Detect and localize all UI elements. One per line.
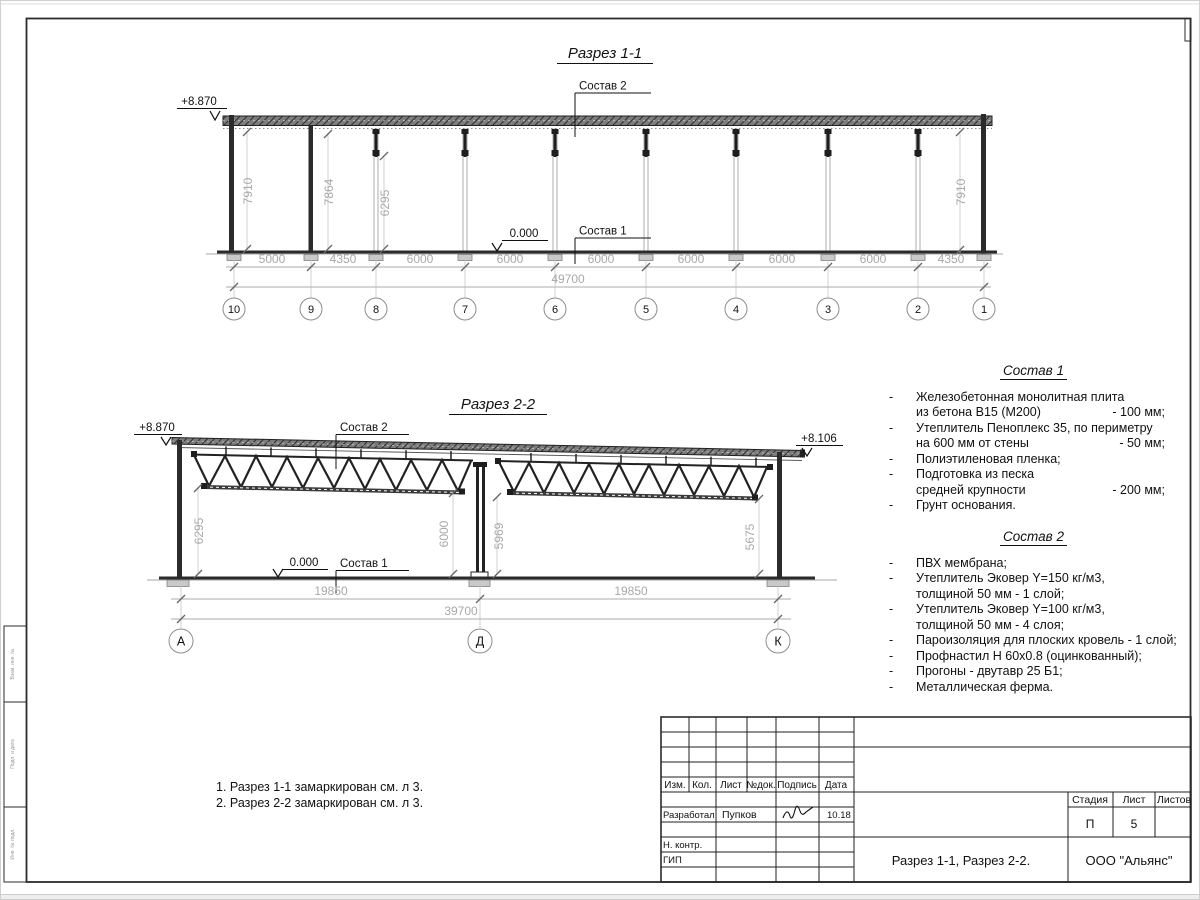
tb-sheet-label: Лист <box>1123 794 1146 806</box>
svg-text:+8.870: +8.870 <box>181 96 217 108</box>
sostav2-block: Состав 2 - ПВХ мембрана; - Утеплитель Эк… <box>876 529 1191 695</box>
svg-text:Состав 1: Состав 1 <box>340 558 388 570</box>
section1-title: Разрез 1-1 <box>568 45 642 62</box>
svg-text:4350: 4350 <box>938 252 965 266</box>
list-item: - Утеплитель Пеноплекс 35, по периметру … <box>876 421 1191 452</box>
section2-dim-chain: 19850 19850 39700 <box>171 584 791 628</box>
svg-text:5: 5 <box>643 304 649 316</box>
list-item: - ПВХ мембрана; <box>876 556 1191 572</box>
svg-text:Состав 2: Состав 2 <box>340 422 388 434</box>
tb-header-ndok: №док. <box>746 780 775 791</box>
svg-text:6000: 6000 <box>497 252 524 266</box>
tb-stage-value: П <box>1086 817 1095 831</box>
svg-text:39700: 39700 <box>444 604 478 618</box>
section1-axis-bubbles: 10 9 8 7 6 5 4 3 2 1 <box>223 298 995 320</box>
section2-title: Разрез 2-2 <box>461 396 536 413</box>
svg-text:6000: 6000 <box>678 252 705 266</box>
svg-text:2: 2 <box>915 304 921 316</box>
svg-text:5969: 5969 <box>492 522 506 549</box>
tb-header-kol: Кол. <box>692 780 712 791</box>
margin-stamp-label: Подп. и дата <box>10 739 16 769</box>
tb-header-izm: Изм. <box>664 780 685 791</box>
svg-text:+8.106: +8.106 <box>801 433 837 445</box>
svg-text:1: 1 <box>981 304 987 316</box>
section2-floor <box>147 577 837 587</box>
tb-stage-label: Стадия <box>1072 794 1108 806</box>
section1-dim-chain: 5000 4350 6000 6000 6000 6000 6000 6000 … <box>226 252 991 298</box>
svg-text:Состав 1: Состав 1 <box>579 226 627 238</box>
sostav2-title: Состав 2 <box>876 529 1191 545</box>
svg-text:Состав 2: Состав 2 <box>579 81 627 93</box>
svg-text:+8.870: +8.870 <box>139 422 175 434</box>
svg-text:6000: 6000 <box>588 252 615 266</box>
list-item: - Утеплитель Эковер Y=100 кг/м3, толщино… <box>876 602 1191 633</box>
list-item: - Профнастил Н 60х0.8 (оцинкованный); <box>876 649 1191 665</box>
section1-columns <box>373 129 922 251</box>
svg-text:9: 9 <box>308 304 314 316</box>
list-item: - Грунт основания. <box>876 498 1191 514</box>
section2-zero-level: 0.000 <box>273 557 328 577</box>
svg-text:8: 8 <box>373 304 379 316</box>
sostav1-block: Состав 1 - Железобетонная монолитная пли… <box>876 363 1191 514</box>
svg-text:7864: 7864 <box>322 178 336 205</box>
drawing-sheet: Взам. инв. № Подп. и дата Инв. № подл. Р… <box>0 0 1200 900</box>
section-2-2-drawing: Разрез 2-2 <box>134 396 843 653</box>
svg-text:0.000: 0.000 <box>510 228 539 240</box>
tb-developed-date: 10.18 <box>827 810 851 821</box>
svg-text:7910: 7910 <box>241 177 255 204</box>
titleblock: Изм. Кол. Лист №док. Подпись Дата Разраб… <box>661 717 1191 882</box>
tb-developed-name: Пупков <box>722 809 757 821</box>
svg-text:6000: 6000 <box>407 252 434 266</box>
section1-zero-level: 0.000 <box>492 228 548 251</box>
svg-text:6000: 6000 <box>769 252 796 266</box>
list-item: - Железобетонная монолитная плита из бет… <box>876 390 1191 421</box>
svg-text:А: А <box>177 635 186 649</box>
tb-developed-label: Разработал <box>663 810 715 821</box>
tb-header-list: Лист <box>720 780 742 791</box>
tb-header-podpis: Подпись <box>777 780 817 791</box>
note-line: 1. Разрез 1-1 замаркирован см. л 3. <box>216 779 423 795</box>
svg-text:Д: Д <box>476 635 485 649</box>
svg-text:5675: 5675 <box>743 523 757 550</box>
svg-text:6295: 6295 <box>192 517 206 544</box>
list-item: - Полиэтиленовая пленка; <box>876 452 1191 468</box>
svg-text:10: 10 <box>228 304 240 316</box>
svg-text:19850: 19850 <box>614 584 648 598</box>
svg-text:4: 4 <box>733 304 739 316</box>
section2-walls <box>177 440 782 579</box>
margin-stamp-label: Инв. № подл. <box>10 828 16 859</box>
section1-roof <box>223 116 992 129</box>
svg-text:0.000: 0.000 <box>290 557 319 569</box>
section-1-1-drawing: Разрез 1-1 <box>177 45 1003 320</box>
tb-company: ООО "Альянс" <box>1086 853 1173 868</box>
note-line: 2. Разрез 2-2 замаркирован см. л 3. <box>216 795 423 811</box>
list-item: - Подготовка из песка средней крупности-… <box>876 467 1191 498</box>
svg-text:6000: 6000 <box>437 520 451 547</box>
sostav1-title: Состав 1 <box>876 363 1191 379</box>
svg-text:4350: 4350 <box>330 252 357 266</box>
tb-signature <box>783 806 813 818</box>
tb-sheet-value: 5 <box>1131 817 1138 831</box>
svg-text:7: 7 <box>462 304 468 316</box>
sheet-notes: 1. Разрез 1-1 замаркирован см. л 3. 2. Р… <box>216 779 423 811</box>
tb-ncontrol-label: Н. контр. <box>663 840 702 851</box>
sheet-edge <box>1 894 1200 900</box>
svg-text:19850: 19850 <box>314 584 348 598</box>
svg-text:7910: 7910 <box>954 178 968 205</box>
list-item: - Металлическая ферма. <box>876 680 1191 696</box>
list-item: - Утеплитель Эковер Y=150 кг/м3, толщино… <box>876 571 1191 602</box>
svg-text:6295: 6295 <box>378 189 392 216</box>
svg-text:6000: 6000 <box>860 252 887 266</box>
margin-stamp-label: Взам. инв. № <box>10 649 16 680</box>
tb-gip-label: ГИП <box>663 855 682 866</box>
section1-elevation-mark: +8.870 <box>177 96 227 120</box>
svg-text:3: 3 <box>825 304 831 316</box>
svg-text:5000: 5000 <box>259 252 286 266</box>
list-item: - Пароизоляция для плоских кровель - 1 с… <box>876 633 1191 649</box>
tb-doc-title: Разрез 1-1, Разрез 2-2. <box>892 853 1030 868</box>
tb-header-data: Дата <box>825 780 848 791</box>
margin-stamp-boxes: Взам. инв. № Подп. и дата Инв. № подл. <box>4 626 27 882</box>
list-item: - Прогоны - двутавр 25 Б1; <box>876 664 1191 680</box>
svg-text:49700: 49700 <box>551 272 585 286</box>
tb-sheets-label: Листов <box>1157 794 1192 806</box>
svg-text:К: К <box>774 635 782 649</box>
section2-axis-bubbles: А Д К <box>169 629 790 653</box>
svg-text:6: 6 <box>552 304 558 316</box>
